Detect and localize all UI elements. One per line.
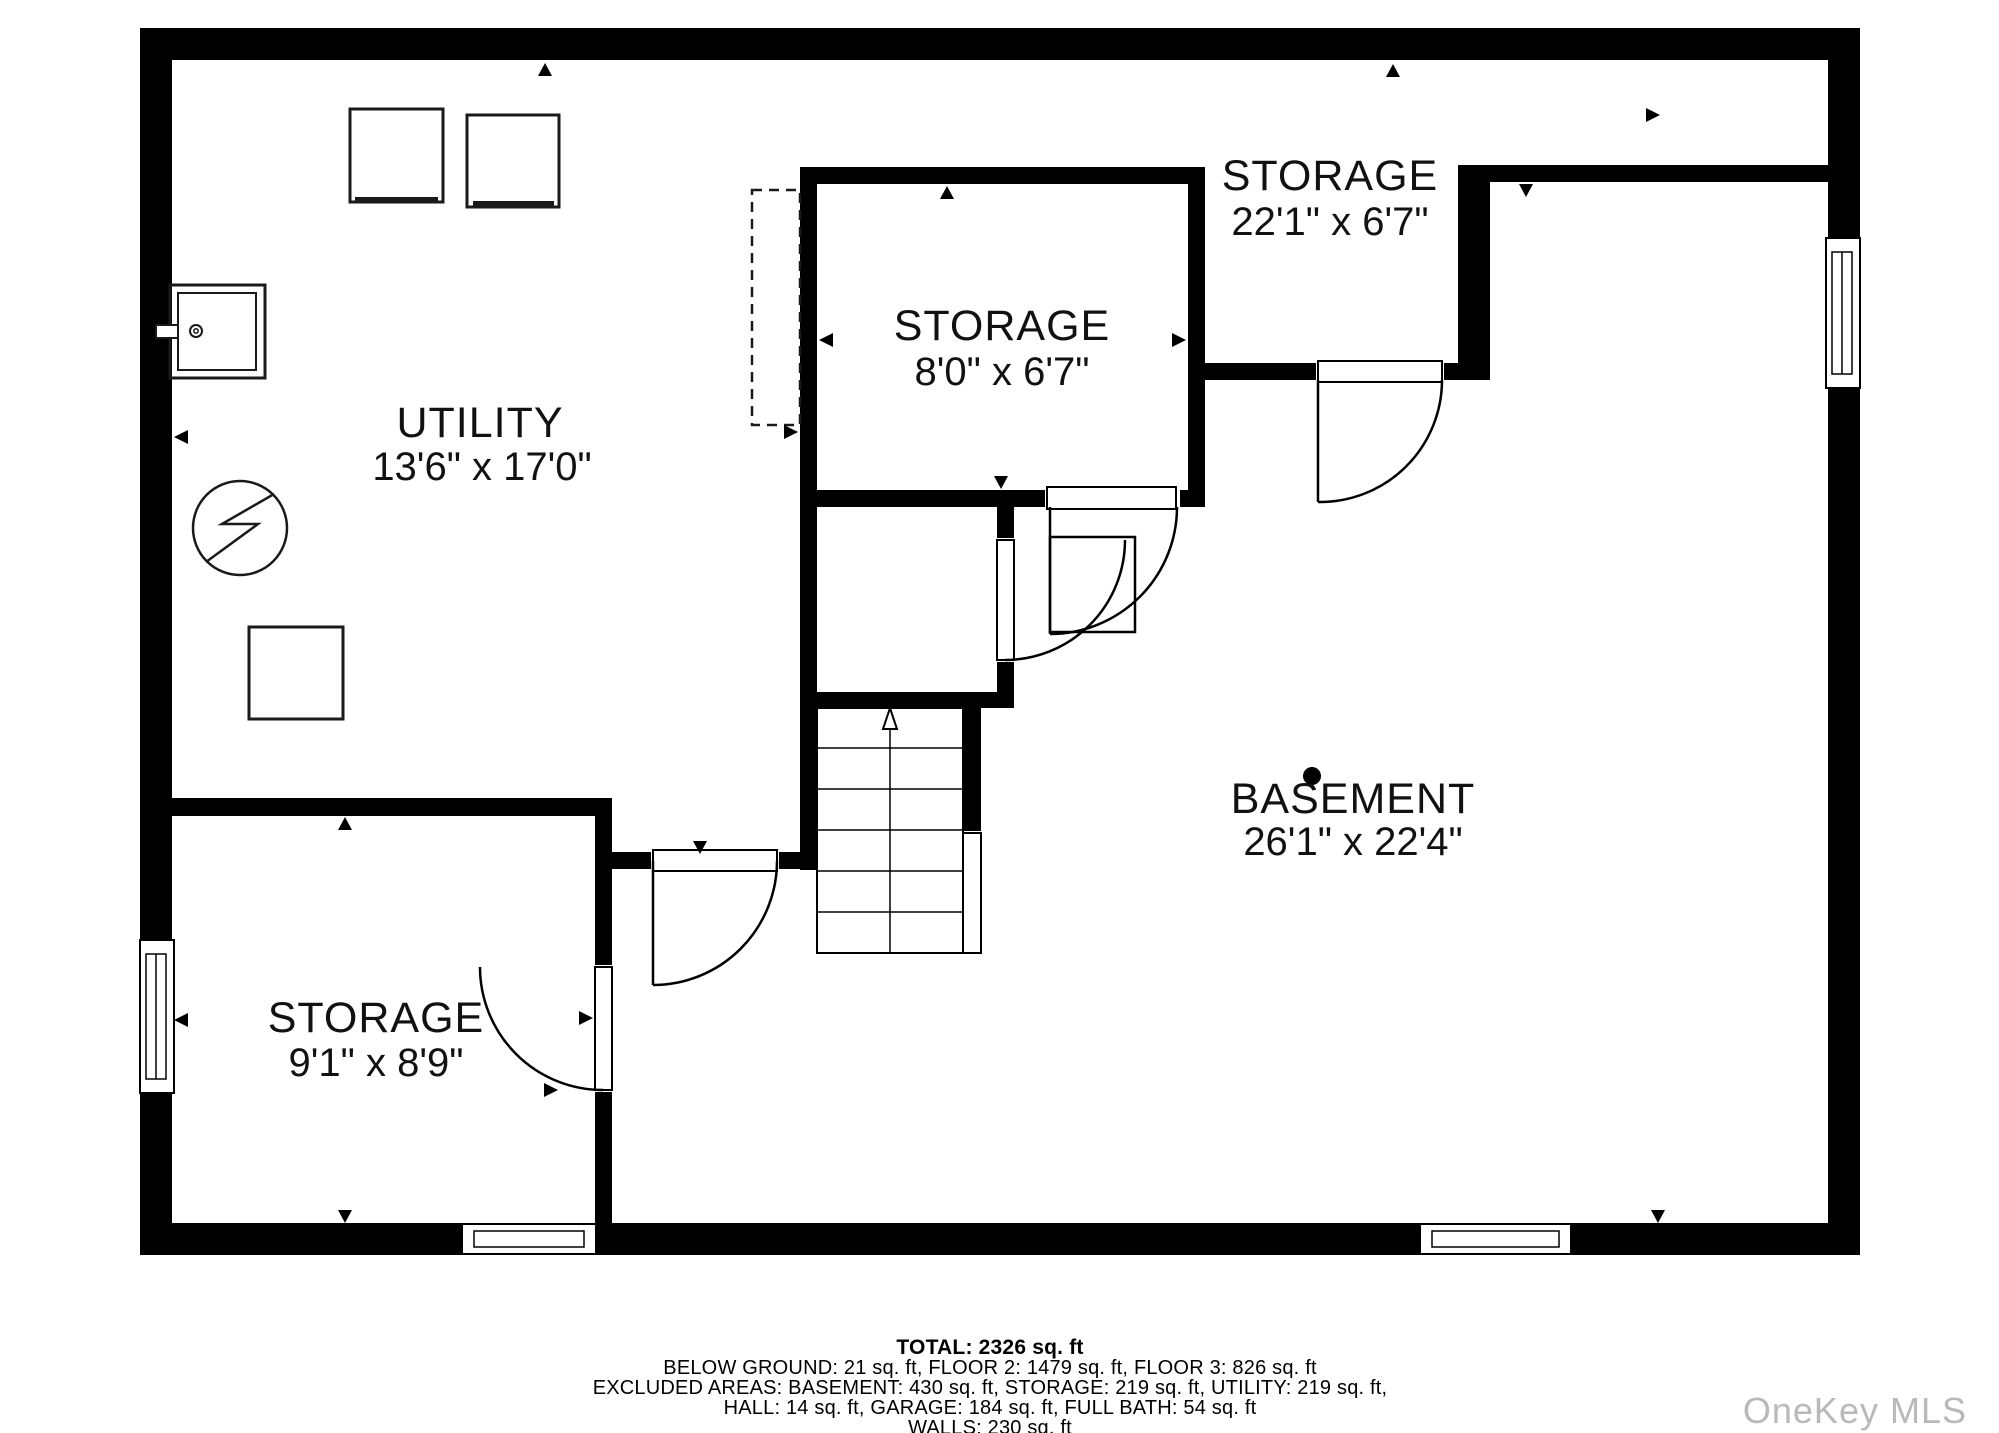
marker-right-icon: [579, 1011, 593, 1025]
marker-right-icon: [1646, 108, 1660, 122]
walls-line: WALLS: 230 sq. ft: [0, 1418, 1980, 1433]
total-area-line: TOTAL: 2326 sq. ft: [0, 1338, 1980, 1358]
marker-up-icon: [538, 63, 552, 76]
door-leaf-stairs: [963, 833, 981, 953]
wall-storage-mid-top: [800, 167, 1205, 184]
door-threshold-topright: [1318, 361, 1442, 382]
marker-left-icon: [174, 1013, 188, 1027]
marker-right-icon: [544, 1083, 558, 1097]
marker-right-icon: [784, 425, 798, 439]
electric-meter: [193, 481, 287, 575]
onekey-mls-watermark: OneKey MLS: [1743, 1390, 1967, 1432]
basement-dims: 26'1" x 22'4": [1243, 820, 1462, 864]
wall-storage-bl-top: [140, 798, 612, 816]
door-leaf-hall: [997, 540, 1014, 660]
marker-up-icon: [940, 186, 954, 199]
water-heater: [156, 285, 265, 378]
floors-line: BELOW GROUND: 21 sq. ft, FLOOR 2: 1479 s…: [0, 1358, 1980, 1378]
door-leaf-storage-bl: [595, 967, 612, 1090]
basement-label: BASEMENT: [1231, 775, 1476, 823]
door-arc-utility: [653, 861, 777, 985]
storage-top-label: STORAGE: [1222, 152, 1438, 200]
wall-storage-mid-right: [1188, 167, 1205, 507]
utility-label: UTILITY: [396, 399, 563, 447]
floorplan-page: UTILITY 13'6" x 17'0" STORAGE 8'0" x 6'7…: [0, 0, 1999, 1433]
storage-bl-dims: 9'1" x 8'9": [289, 1041, 464, 1085]
marker-right-icon: [1172, 333, 1186, 347]
door-arc-storage-mid: [1050, 507, 1177, 634]
floorplan-drawing: UTILITY 13'6" x 17'0" STORAGE 8'0" x 6'7…: [0, 0, 1999, 1433]
wall-hall-bottom: [800, 692, 1014, 708]
wall-topright-step: [1458, 165, 1490, 380]
window-left-wall: [140, 940, 174, 1093]
marker-down-icon: [1651, 1210, 1665, 1223]
marker-up-icon: [338, 817, 352, 830]
storage-bl-label: STORAGE: [268, 994, 484, 1042]
marker-left-icon: [174, 430, 188, 444]
marker-left-icon: [819, 333, 833, 347]
door-threshold-utility: [653, 850, 777, 871]
window-bottom-right: [1420, 1224, 1571, 1254]
door-frame-detail: [1050, 537, 1135, 632]
storage-mid-label: STORAGE: [894, 302, 1110, 350]
marker-up-icon: [1386, 64, 1400, 77]
wall-storage-hall-left: [800, 167, 817, 870]
door-arc-storage-bl: [480, 967, 603, 1090]
fixture-square: [249, 627, 343, 719]
dashed-zone: [752, 190, 800, 425]
window-bottom-left: [462, 1224, 596, 1254]
door-arc-hall: [1005, 540, 1125, 660]
marker-down-icon: [338, 1210, 352, 1223]
storage-top-dims: 22'1" x 6'7": [1231, 200, 1428, 244]
door-threshold-storage-mid: [1047, 487, 1176, 509]
wall-stair-right: [963, 707, 981, 833]
excluded-line-2: HALL: 14 sq. ft, GARAGE: 184 sq. ft, FUL…: [0, 1398, 1980, 1418]
wall-topright-lower: [1458, 165, 1828, 182]
window-right-wall: [1826, 238, 1860, 388]
area-summary: TOTAL: 2326 sq. ft BELOW GROUND: 21 sq. …: [0, 1338, 1980, 1433]
utility-dims: 13'6" x 17'0": [372, 445, 591, 489]
stair-up-arrow-icon: [883, 708, 897, 729]
marker-down-icon: [1519, 184, 1533, 197]
staircase: [817, 708, 963, 953]
door-arc-topright: [1318, 380, 1442, 502]
storage-mid-dims: 8'0" x 6'7": [915, 350, 1090, 394]
excluded-line: EXCLUDED AREAS: BASEMENT: 430 sq. ft, ST…: [0, 1378, 1980, 1398]
appliance-box-2: [467, 115, 559, 207]
marker-down-icon: [994, 476, 1008, 489]
room-labels: UTILITY 13'6" x 17'0" STORAGE 8'0" x 6'7…: [268, 152, 1476, 1085]
appliance-box-1: [350, 109, 443, 202]
